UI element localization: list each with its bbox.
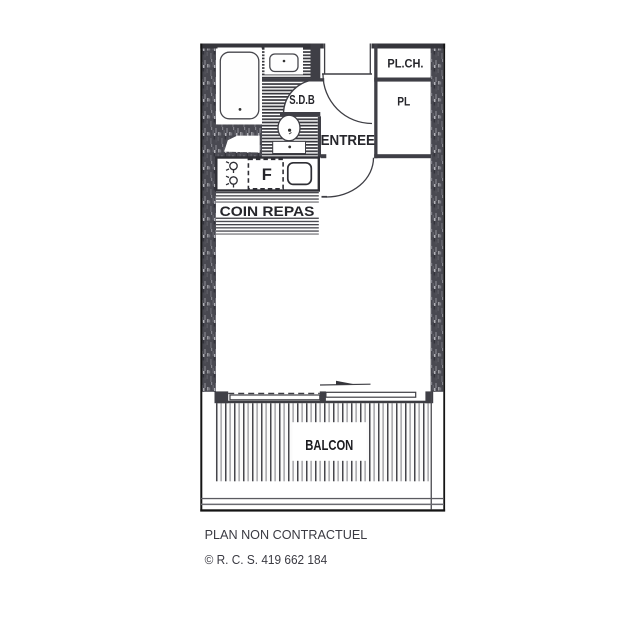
svg-text:© R. C. S. 419 662 184: © R. C. S. 419 662 184 <box>205 553 328 567</box>
svg-text:PL.CH.: PL.CH. <box>387 58 423 70</box>
svg-text:BALCON: BALCON <box>305 437 353 454</box>
svg-text:PLAN NON CONTRACTUEL: PLAN NON CONTRACTUEL <box>205 528 368 542</box>
svg-text:COIN REPAS: COIN REPAS <box>220 204 315 219</box>
svg-text:S.D.B: S.D.B <box>289 93 315 107</box>
svg-text:PL: PL <box>397 95 410 109</box>
svg-text:ENTREE: ENTREE <box>321 133 375 149</box>
svg-text:F: F <box>262 166 272 184</box>
